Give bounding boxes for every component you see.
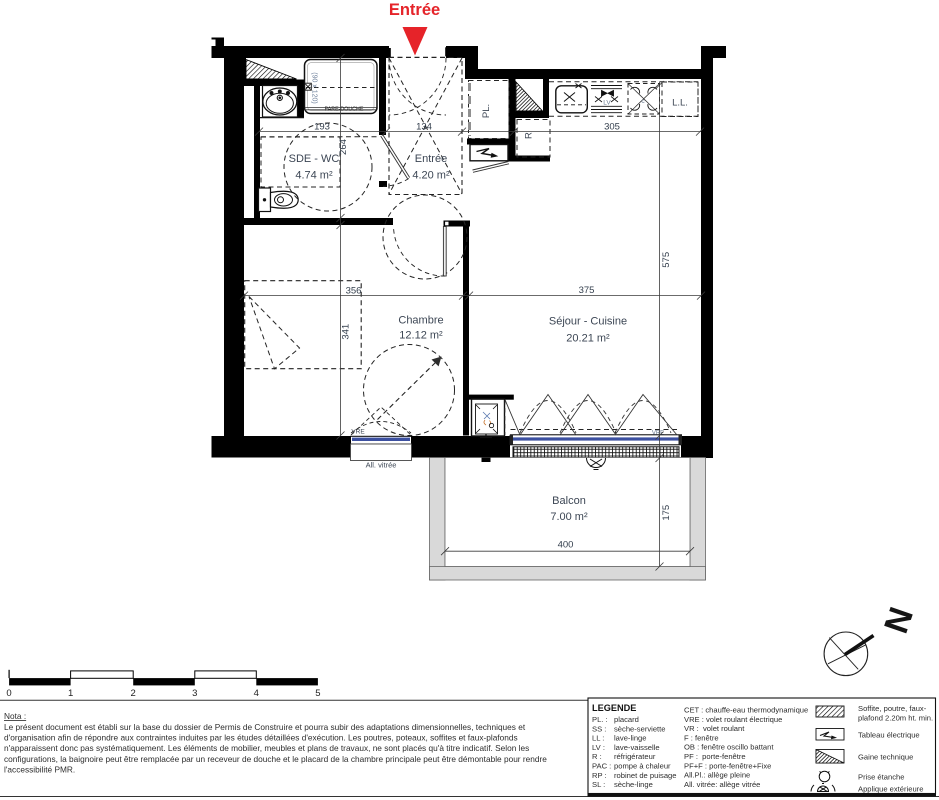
svg-text:plafond 2.20m ht. min.: plafond 2.20m ht. min. xyxy=(858,713,933,722)
svg-text:LV: LV xyxy=(603,100,611,107)
svg-text:OB : fenêtre oscillo battant: OB : fenêtre oscillo battant xyxy=(684,743,774,752)
svg-text:SS :: SS : xyxy=(592,724,606,733)
svg-text:575: 575 xyxy=(661,252,672,268)
svg-text:3: 3 xyxy=(192,688,197,699)
svg-text:PARE-DOUCHE: PARE-DOUCHE xyxy=(325,107,364,113)
svg-text:VR : volet roulant: VR : volet roulant xyxy=(684,724,745,733)
svg-text:Séjour - Cuisine: Séjour - Cuisine xyxy=(549,316,627,328)
svg-text:Chambre: Chambre xyxy=(398,315,443,327)
svg-text:VRE: VRE xyxy=(652,431,664,437)
svg-text:configurations, la baignoire p: configurations, la baignoire peut être r… xyxy=(4,754,547,764)
svg-text:356: 356 xyxy=(346,285,362,296)
svg-text:264: 264 xyxy=(338,139,349,155)
svg-text:pompe à chaleur: pompe à chaleur xyxy=(614,762,671,771)
svg-text:Balcon: Balcon xyxy=(552,495,586,507)
svg-text:400: 400 xyxy=(558,540,574,551)
svg-text:réfrigérateur: réfrigérateur xyxy=(614,752,656,761)
svg-text:SDE - WC: SDE - WC xyxy=(289,153,340,165)
svg-text:robinet de puisage: robinet de puisage xyxy=(614,771,677,780)
svg-text:VRE : volet roulant électrique: VRE : volet roulant électrique xyxy=(684,715,782,724)
svg-text:1: 1 xyxy=(68,688,73,699)
svg-text:All. vitrée: allège vitrée: All. vitrée: allège vitrée xyxy=(684,780,760,789)
svg-text:20.21 m²: 20.21 m² xyxy=(566,333,610,345)
svg-text:Soffite, poutre, faux-: Soffite, poutre, faux- xyxy=(858,704,927,713)
svg-text:341: 341 xyxy=(341,324,352,340)
svg-text:PF : porte-fenêtre: PF : porte-fenêtre xyxy=(684,752,746,761)
svg-text:0: 0 xyxy=(6,688,11,699)
svg-text:134: 134 xyxy=(416,122,432,133)
svg-text:l'accessibilité PMR.: l'accessibilité PMR. xyxy=(4,764,75,774)
svg-text:175: 175 xyxy=(661,505,672,521)
svg-text:193: 193 xyxy=(314,122,330,133)
svg-text:Nota :: Nota : xyxy=(4,711,26,721)
svg-text:Applique extérieure: Applique extérieure xyxy=(858,785,923,794)
svg-text:R: R xyxy=(524,132,535,139)
svg-text:LL :: LL : xyxy=(592,734,604,743)
svg-text:Gaine technique: Gaine technique xyxy=(858,753,913,762)
svg-text:(90 x 120): (90 x 120) xyxy=(311,72,318,104)
svg-text:VRE: VRE xyxy=(351,429,365,436)
svg-text:PF+F : porte-fenêtre+Fixe: PF+F : porte-fenêtre+Fixe xyxy=(684,761,771,770)
svg-text:F : fenêtre: F : fenêtre xyxy=(684,733,719,742)
svg-text:Le présent document est établi: Le présent document est établi sur la ba… xyxy=(4,722,526,732)
svg-text:R :: R : xyxy=(592,752,602,761)
svg-text:lave-linge: lave-linge xyxy=(614,734,647,743)
svg-text:L.L.: L.L. xyxy=(672,98,688,109)
svg-text:7.00 m²: 7.00 m² xyxy=(550,511,588,523)
svg-text:LV :: LV : xyxy=(592,743,605,752)
svg-text:sèche-serviette: sèche-serviette xyxy=(614,724,666,733)
svg-text:12.12 m²: 12.12 m² xyxy=(399,330,443,342)
svg-text:PL. :: PL. : xyxy=(592,715,608,724)
svg-text:n'apparaissent donc pas systém: n'apparaissent donc pas systématiquement… xyxy=(4,743,529,753)
svg-text:PL.: PL. xyxy=(481,104,492,118)
svg-text:LEGENDE: LEGENDE xyxy=(592,703,636,713)
svg-text:sèche-linge: sèche-linge xyxy=(614,780,653,789)
svg-text:Entrée: Entrée xyxy=(389,1,440,19)
svg-text:PAC :: PAC : xyxy=(592,762,611,771)
svg-text:305: 305 xyxy=(604,122,620,133)
svg-text:All.Pl.: allège pleine: All.Pl.: allège pleine xyxy=(684,771,750,780)
svg-text:CET : chauffe-eau thermodynami: CET : chauffe-eau thermodynamique xyxy=(684,706,808,715)
svg-text:4.74 m²: 4.74 m² xyxy=(295,170,333,182)
svg-text:placard: placard xyxy=(614,715,639,724)
svg-text:d'organisation afin de répondr: d'organisation afin de répondre aux cont… xyxy=(4,733,518,743)
svg-text:Prise étanche: Prise étanche xyxy=(858,773,904,782)
svg-text:RP :: RP : xyxy=(592,771,607,780)
svg-text:Tableau électrique: Tableau électrique xyxy=(858,731,920,740)
svg-text:Entrée: Entrée xyxy=(415,153,447,165)
svg-text:SL :: SL : xyxy=(592,780,605,789)
svg-text:All. vitrée: All. vitrée xyxy=(366,461,397,470)
svg-text:4.20 m²: 4.20 m² xyxy=(412,170,450,182)
svg-text:lave-vaisselle: lave-vaisselle xyxy=(614,743,660,752)
svg-text:375: 375 xyxy=(579,285,595,296)
svg-text:4: 4 xyxy=(254,688,259,699)
svg-text:5: 5 xyxy=(315,688,320,699)
svg-text:2: 2 xyxy=(131,688,136,699)
